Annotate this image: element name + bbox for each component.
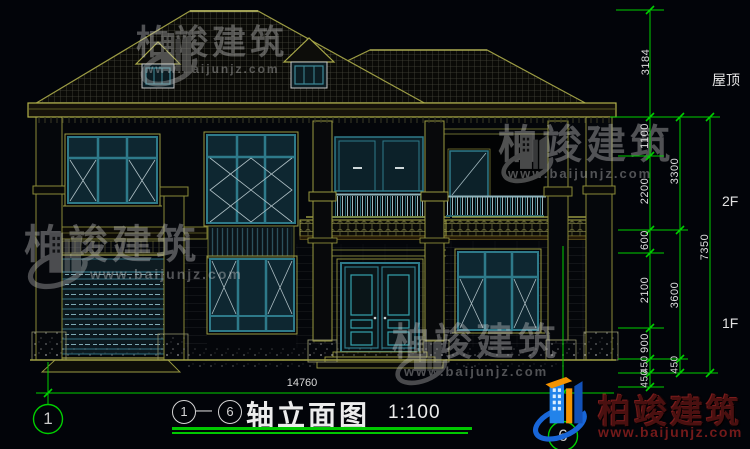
dim-3600: 3600 (669, 265, 681, 325)
dim-2100: 2100 (639, 260, 651, 320)
dimension-ticks (44, 6, 714, 397)
dim-7350: 7350 (699, 217, 711, 277)
dim-450-c: 450 (670, 345, 681, 385)
dimension-layer (0, 0, 750, 449)
label-1f: 1F (722, 315, 738, 331)
dim-3184: 3184 (640, 32, 652, 92)
axis-number-left: 1 (33, 409, 63, 429)
title-underline (172, 432, 468, 434)
label-roof: 屋顶 (712, 70, 740, 90)
brand-logo-url: www.baijunjz.com (598, 424, 743, 440)
brand-logo-icon (532, 376, 594, 448)
title-axis-end: 6 (218, 400, 242, 424)
dimension-lines (36, 10, 720, 422)
title-underline (172, 427, 472, 430)
dim-1100: 1100 (639, 106, 651, 166)
dim-3300: 3300 (669, 141, 681, 201)
drawing-scale: 1:100 (388, 402, 441, 424)
label-2f: 2F (722, 193, 738, 209)
title-separator: — (196, 402, 212, 420)
title-axis-start: 1 (172, 400, 196, 424)
dim-total-width: 14760 (272, 377, 332, 389)
cad-elevation-screenshot: 柏竣建筑 www.baijunjz.com 柏竣建筑 www.baijunjz.… (0, 0, 750, 449)
